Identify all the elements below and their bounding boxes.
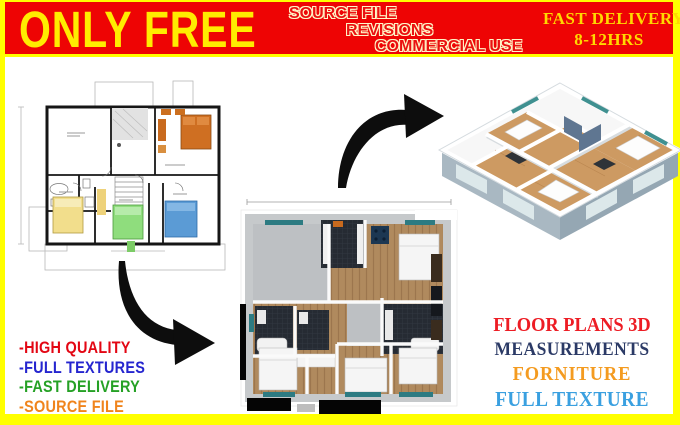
services-list: FLOOR PLANS 3D MEASUREMENTS FORNITURE FU… [490, 313, 654, 411]
gig-poster: ONLY FREE SOURCE FILE REVISIONS COMMERCI… [0, 0, 680, 425]
benefits-list: -HIGH QUALITY -FULL TEXTURES -FAST DELIV… [19, 338, 145, 416]
service-forniture: FORNITURE [490, 362, 654, 387]
perk-source-file: SOURCE FILE [289, 6, 522, 23]
top-banner: ONLY FREE SOURCE FILE REVISIONS COMMERCI… [5, 2, 673, 57]
curved-arrow-up-right-icon [330, 80, 448, 192]
perk-commercial-use: COMMERCIAL USE [375, 39, 522, 56]
headline-text: ONLY FREE [19, 4, 257, 55]
blue-bed [165, 201, 197, 237]
delivery-badge: FAST DELIVERY 8-12HRS [543, 8, 675, 50]
benefit-high-quality: -HIGH QUALITY [19, 338, 145, 358]
2d-floor-plan-image [15, 79, 237, 275]
perk-revisions: REVISIONS [346, 23, 522, 40]
service-full-texture: FULL TEXTURE [490, 387, 654, 412]
service-floor-plans-3d: FLOOR PLANS 3D [490, 313, 654, 338]
service-measurements: MEASUREMENTS [490, 338, 654, 363]
banner-perks-list: SOURCE FILE REVISIONS COMMERCIAL USE [289, 6, 522, 56]
3d-isometric-floor-plan-render [435, 70, 680, 282]
poster-content-area: ONLY FREE SOURCE FILE REVISIONS COMMERCI… [5, 2, 673, 414]
3d-top-down-floor-plan-render [237, 198, 461, 417]
navy-stove [371, 226, 389, 244]
delivery-line-1: FAST DELIVERY [543, 8, 675, 29]
benefit-fast-delivery: -FAST DELIVERY [19, 377, 145, 397]
delivery-line-2: 8-12HRS [543, 29, 675, 50]
dimension-line [247, 199, 451, 205]
orange-bed [181, 115, 211, 149]
benefit-full-textures: -FULL TEXTURES [19, 358, 145, 378]
benefit-source-file: -SOURCE FILE [19, 397, 145, 417]
